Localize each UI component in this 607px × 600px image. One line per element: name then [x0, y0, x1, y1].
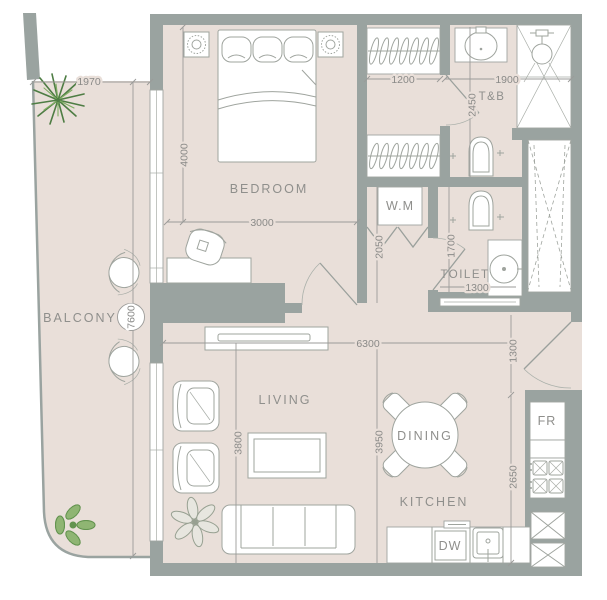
dining-label: DINING	[397, 429, 453, 443]
bedroom-label: BEDROOM	[230, 182, 309, 196]
kitchen-label: KITCHEN	[400, 495, 469, 509]
armchair-living-1	[173, 381, 219, 431]
dim-balcony-width: 1970	[77, 76, 101, 88]
toilet-tandb	[469, 137, 493, 176]
structural-column	[157, 283, 285, 323]
floor-plan-drawing: BALCONY BEDROOM LIVING DINING KITCHEN TO…	[0, 0, 607, 600]
balcony-label: BALCONY	[43, 311, 117, 325]
tv-console	[205, 327, 328, 350]
dim-living-span: 6300	[356, 338, 380, 350]
dim-tandb-width: 1900	[495, 74, 519, 86]
dim-dining-depth: 3950	[374, 430, 386, 454]
balcony-divider-wall	[23, 13, 40, 80]
bed	[218, 30, 316, 162]
nightstand-left	[184, 32, 209, 57]
dim-toilet-depth: 1700	[446, 234, 458, 258]
dim-balcony-length: 7600	[126, 305, 138, 329]
dim-bedroom-width: 3000	[250, 217, 274, 229]
armchair-living-2	[173, 443, 219, 493]
toilet-wc	[469, 191, 493, 230]
coffee-table	[248, 433, 326, 478]
tandb-label: T&B	[479, 91, 506, 103]
floor-plan: BALCONY BEDROOM LIVING DINING KITCHEN TO…	[0, 0, 607, 600]
dim-closet-width: 1200	[391, 74, 415, 86]
wm-label: W.M	[386, 199, 414, 213]
dim-hall-depth: 2050	[374, 235, 386, 259]
dim-entry-width: 1300	[508, 339, 520, 363]
dim-tandb-depth: 2450	[467, 93, 479, 117]
living-label: LIVING	[259, 393, 312, 407]
dim-living-depth: 3800	[233, 431, 245, 455]
kitchen-counter-right	[530, 440, 565, 458]
fr-label: FR	[538, 414, 557, 428]
nightstand-right	[318, 32, 343, 57]
dim-toilet-width: 1300	[465, 282, 489, 294]
toilet-label: TOILET	[440, 269, 489, 281]
dim-kitchen-depth: 2650	[508, 465, 520, 489]
dim-bedroom-depth: 4000	[179, 143, 191, 167]
sofa	[222, 505, 355, 554]
dw-label: DW	[439, 539, 462, 553]
